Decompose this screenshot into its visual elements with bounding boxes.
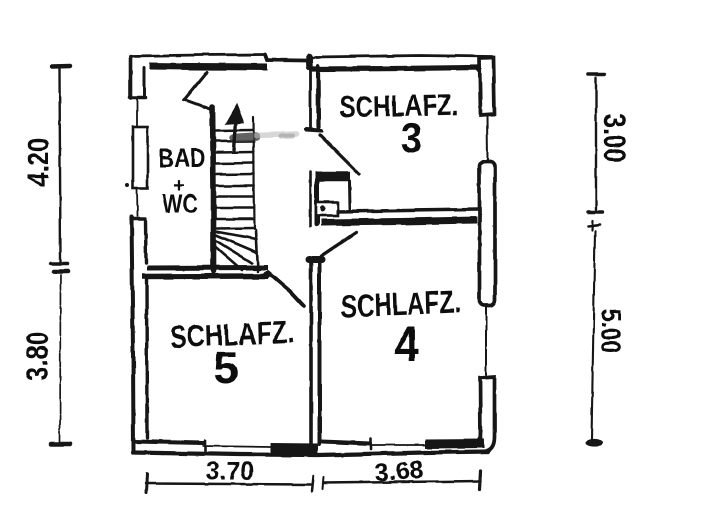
svg-text:4.20: 4.20 [21, 138, 55, 187]
svg-text:4: 4 [394, 315, 418, 371]
svg-text:5: 5 [213, 342, 238, 393]
svg-text:3.00: 3.00 [598, 114, 632, 163]
svg-text:5.00: 5.00 [595, 309, 626, 354]
svg-text:3.70: 3.70 [206, 458, 255, 486]
svg-text:3.68: 3.68 [374, 456, 425, 487]
svg-text:3: 3 [401, 113, 422, 162]
svg-text:BAD: BAD [159, 144, 206, 174]
svg-text:SCHLAFZ.: SCHLAFZ. [339, 87, 458, 124]
svg-text:3.80: 3.80 [20, 332, 54, 381]
svg-text:WC: WC [162, 190, 198, 220]
